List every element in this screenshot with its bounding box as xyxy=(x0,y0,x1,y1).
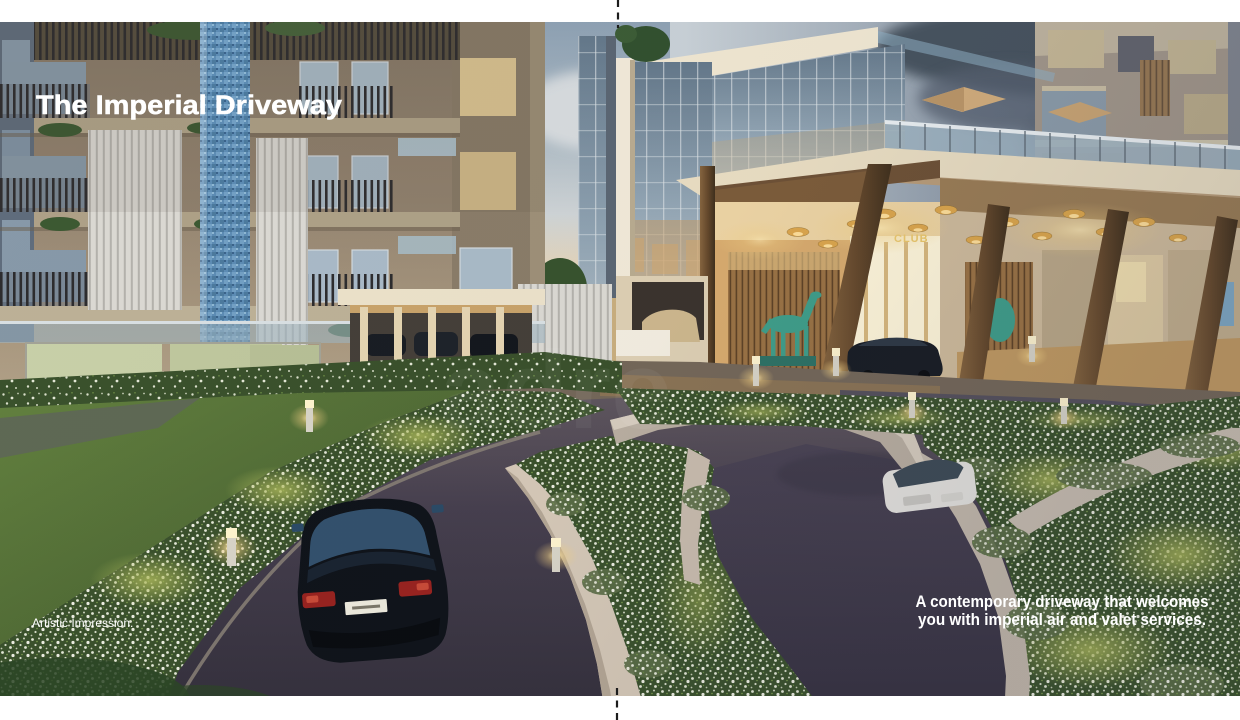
svg-text:Artistic Impression.: Artistic Impression. xyxy=(32,616,133,630)
svg-text:A contemporary driveway that w: A contemporary driveway that welcomes xyxy=(916,593,1209,611)
svg-text:The Imperial Driveway: The Imperial Driveway xyxy=(36,90,342,120)
svg-text:adre: adre xyxy=(440,329,672,452)
svg-text:you with imperial air and vale: you with imperial air and valet services… xyxy=(918,611,1206,629)
